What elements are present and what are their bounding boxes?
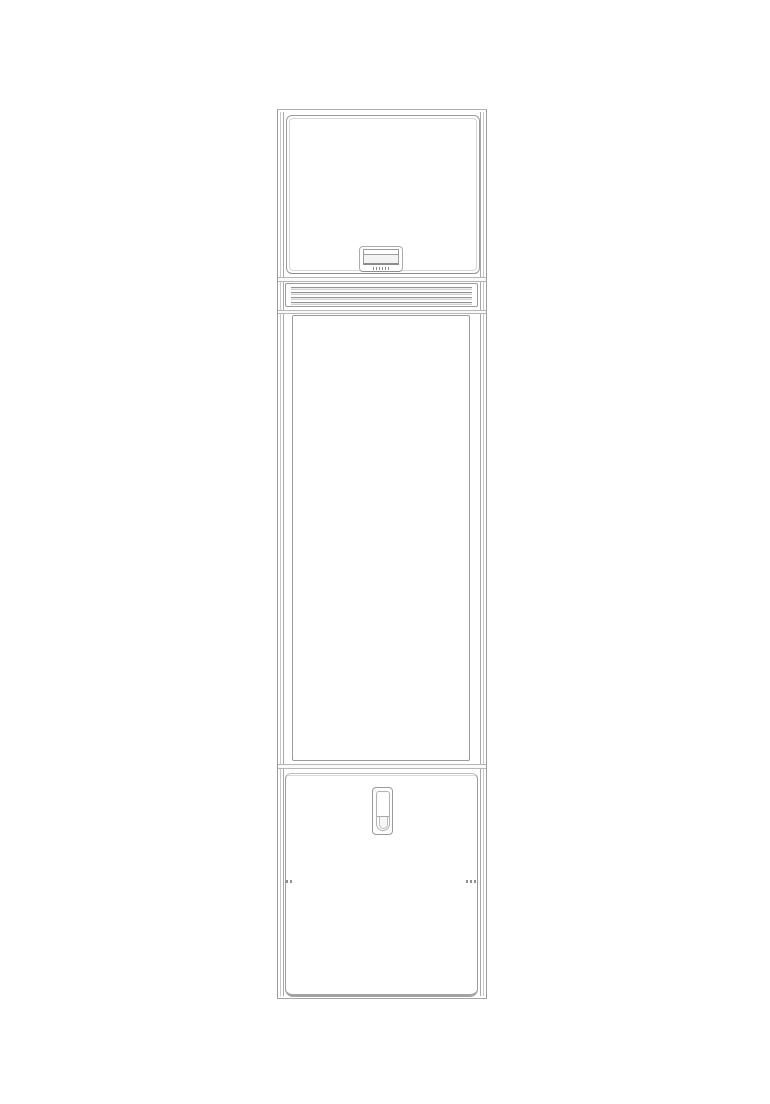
middle-panel bbox=[292, 315, 470, 761]
left-rail-outer-line bbox=[280, 112, 281, 996]
cross-rail-bottom bbox=[278, 764, 486, 769]
control-nameplate bbox=[359, 246, 403, 272]
door-handle bbox=[372, 787, 393, 835]
bottom-access-door bbox=[285, 773, 478, 997]
grille-slat bbox=[291, 302, 472, 305]
left-latch-mark bbox=[286, 880, 293, 883]
cross-rail-top bbox=[278, 277, 486, 282]
grille-slat bbox=[291, 292, 472, 295]
nameplate-window bbox=[363, 249, 399, 265]
grille-slat bbox=[291, 297, 472, 300]
right-rail-inner-line bbox=[480, 112, 481, 996]
vent-grille bbox=[285, 283, 478, 307]
left-rail-inner-line bbox=[283, 112, 284, 996]
grille-slat bbox=[291, 287, 472, 290]
cross-rail-middle bbox=[278, 310, 486, 314]
right-latch-mark bbox=[466, 880, 477, 883]
door-handle-pocket bbox=[379, 817, 388, 829]
door-handle-recess bbox=[376, 791, 390, 831]
illustration-canvas bbox=[0, 0, 770, 1104]
nameplate-row-bottom bbox=[364, 255, 398, 263]
nameplate-fine-print bbox=[373, 267, 391, 270]
bottom-door-inner-outline bbox=[288, 775, 475, 776]
right-rail-outer-line bbox=[483, 112, 484, 996]
